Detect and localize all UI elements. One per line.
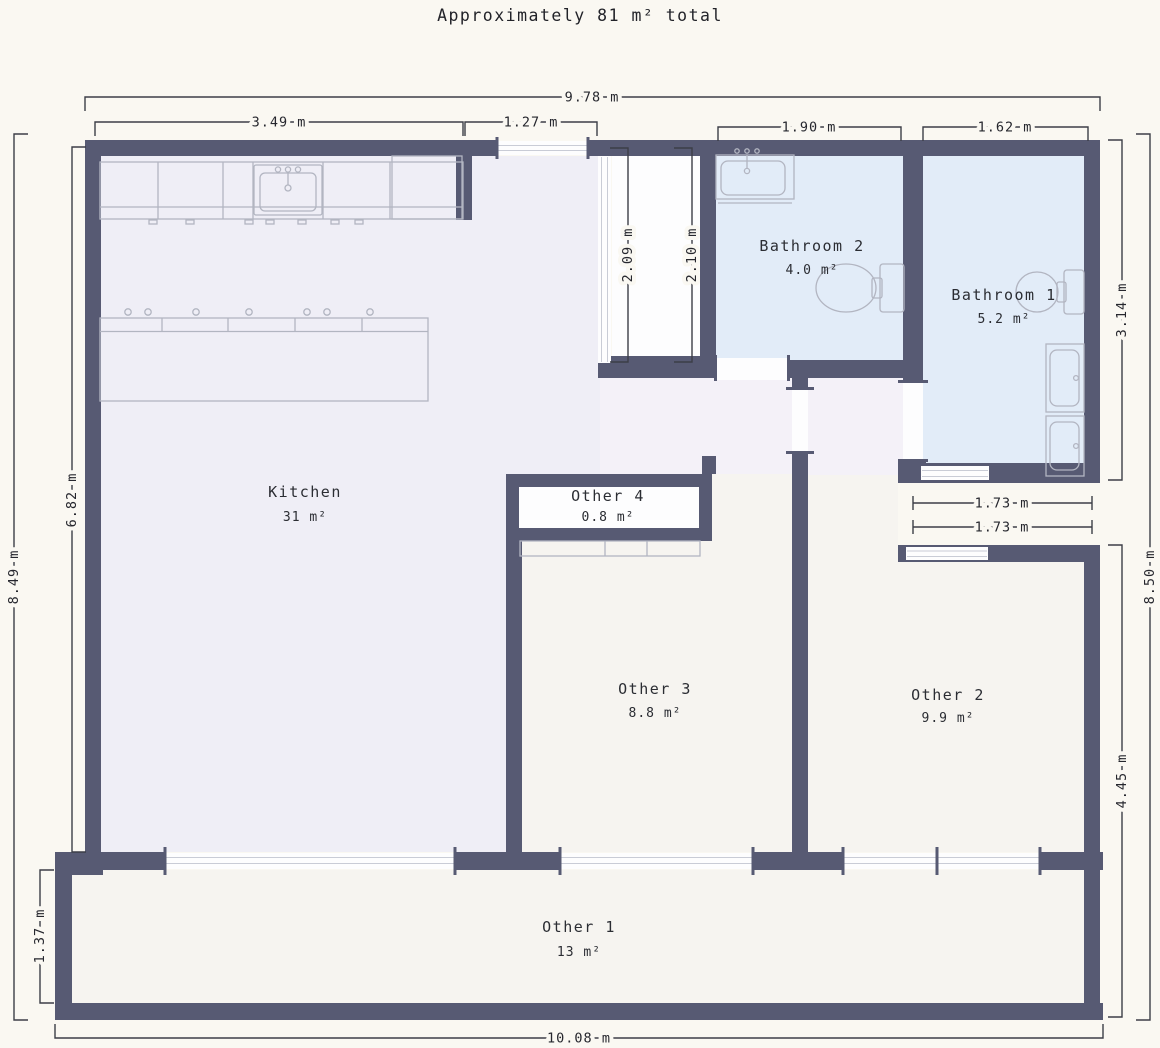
door-jamb: [786, 451, 814, 454]
floorplan-page: Approximately 81 m² total: [0, 0, 1160, 1048]
dim-entry-window: 1.27 m: [465, 115, 597, 137]
door-jamb: [787, 355, 790, 381]
room-area: 13 m²: [557, 945, 601, 960]
door-jamb: [752, 847, 755, 875]
svg-text:6.82 m: 6.82 m: [64, 473, 80, 528]
window-jamb: [496, 137, 499, 159]
other1-floor: [72, 870, 1084, 1003]
floorplan-drawing: Approximately 81 m² total: [0, 0, 1160, 1048]
dim-bathroom2-width: 1.90 m: [718, 120, 901, 142]
door-jamb: [559, 847, 562, 875]
bathroom1-floor: [923, 156, 1084, 466]
dim-kitchen-left: 6.82 m: [64, 147, 86, 852]
room-name: Other 1: [542, 918, 616, 936]
dim-other2-right: 4.45 m: [1108, 545, 1130, 1017]
other3-door-gap: [712, 474, 792, 541]
svg-text:4.45 m: 4.45 m: [1114, 754, 1130, 809]
svg-text:8.49 m: 8.49 m: [6, 550, 22, 605]
room-name: Kitchen: [268, 483, 342, 501]
lightwell-void: [898, 483, 1103, 545]
door-jamb: [454, 847, 457, 875]
door-jamb: [898, 459, 928, 462]
svg-text:1.27 m: 1.27 m: [504, 115, 559, 131]
room-area: 9.9 m²: [922, 711, 975, 726]
door-jamb: [936, 847, 939, 875]
svg-text:9.78 m: 9.78 m: [565, 90, 620, 106]
door-jamb: [786, 387, 814, 390]
page-title: Approximately 81 m² total: [437, 6, 723, 25]
room-area: 8.8 m²: [629, 706, 682, 721]
svg-text:1.62 m: 1.62 m: [978, 120, 1033, 136]
door-jamb: [898, 380, 928, 383]
svg-text:2.09 m: 2.09 m: [620, 228, 636, 283]
floors: [72, 156, 1103, 1003]
dim-top-total: 9.78 m: [85, 90, 1100, 112]
dim-bottom-total: 10.08 m: [55, 1024, 1103, 1047]
dim-bathroom1-width: 1.62 m: [923, 120, 1088, 142]
svg-text:1.90 m: 1.90 m: [782, 120, 837, 136]
door-jamb: [714, 355, 717, 381]
svg-text:8.50 m: 8.50 m: [1142, 550, 1158, 605]
dim-left-total: 8.49 m: [6, 134, 28, 1020]
svg-text:1.37 m: 1.37 m: [32, 909, 48, 964]
bathroom2-floor: [716, 156, 903, 363]
svg-text:10.08 m: 10.08 m: [547, 1031, 611, 1047]
dim-bathrooms-right: 3.14 m: [1108, 140, 1130, 480]
door-jamb: [1039, 847, 1042, 875]
room-name: Other 3: [618, 680, 692, 698]
svg-text:1.73 m: 1.73 m: [975, 520, 1030, 536]
room-area: 0.8 m²: [582, 510, 635, 525]
door-jamb: [842, 847, 845, 875]
dim-kitchen-top: 3.49 m: [95, 115, 463, 137]
dim-other1-left: 1.37 m: [32, 870, 54, 1003]
window-jamb: [587, 137, 590, 159]
room-area: 5.2 m²: [978, 312, 1031, 327]
room-name: Other 2: [911, 686, 985, 704]
room-name: Bathroom 2: [759, 237, 864, 255]
door-jamb: [164, 847, 167, 875]
svg-text:3.49 m: 3.49 m: [252, 115, 307, 131]
room-name: Bathroom 1: [951, 286, 1056, 304]
room-area: 4.0 m²: [786, 263, 839, 278]
room-area: 31 m²: [283, 510, 327, 525]
room-name: Other 4: [571, 487, 645, 505]
dim-right-total: 8.50 m: [1136, 134, 1158, 1020]
svg-text:2.10 m: 2.10 m: [684, 228, 700, 283]
svg-text:1.73 m: 1.73 m: [975, 496, 1030, 512]
svg-text:3.14 m: 3.14 m: [1114, 283, 1130, 338]
